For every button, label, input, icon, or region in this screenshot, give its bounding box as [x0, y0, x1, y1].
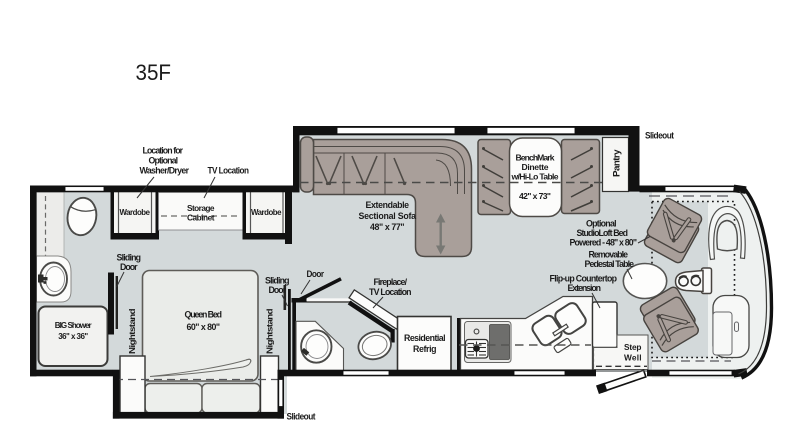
- svg-text:Refrig: Refrig: [413, 344, 436, 354]
- svg-text:Step: Step: [624, 342, 641, 352]
- svg-text:TV Location: TV Location: [208, 166, 249, 176]
- svg-text:BenchMark: BenchMark: [516, 153, 555, 163]
- svg-text:Sectional Sofa: Sectional Sofa: [359, 211, 417, 221]
- svg-text:w/Hi-Lo Table: w/Hi-Lo Table: [511, 172, 559, 182]
- svg-text:Wardobe: Wardobe: [251, 207, 282, 217]
- svg-text:Flip-up Countertop: Flip-up Countertop: [550, 274, 618, 284]
- svg-text:Extendable: Extendable: [366, 200, 410, 210]
- svg-text:Door: Door: [307, 269, 325, 279]
- svg-text:Storage: Storage: [187, 203, 215, 213]
- svg-text:Fireplace/: Fireplace/: [374, 277, 408, 287]
- svg-text:Nightstand: Nightstand: [265, 308, 275, 354]
- svg-text:Optional: Optional: [586, 219, 616, 229]
- svg-text:Powered - 48" x 80": Powered - 48" x 80": [570, 238, 637, 248]
- svg-text:Dinette: Dinette: [522, 162, 549, 172]
- svg-text:Removable: Removable: [589, 250, 629, 260]
- svg-text:60" x 80": 60" x 80": [187, 322, 220, 332]
- svg-text:Pedestal Table: Pedestal Table: [585, 259, 635, 269]
- svg-text:Cabinet: Cabinet: [187, 213, 215, 223]
- svg-text:BIG Shower: BIG Shower: [55, 321, 92, 330]
- svg-text:Optional: Optional: [149, 156, 178, 166]
- svg-text:35F: 35F: [136, 60, 172, 85]
- svg-text:Door: Door: [120, 262, 138, 272]
- svg-text:Pantry: Pantry: [612, 149, 622, 177]
- svg-text:48" x 77": 48" x 77": [370, 222, 404, 232]
- svg-text:Location for: Location for: [143, 146, 184, 156]
- svg-text:Door: Door: [269, 285, 287, 295]
- svg-text:Residential: Residential: [404, 333, 445, 343]
- svg-text:Extension: Extension: [568, 283, 601, 293]
- svg-text:Slideout: Slideout: [287, 412, 316, 422]
- svg-text:Sliding: Sliding: [117, 253, 141, 263]
- svg-text:42" x 73": 42" x 73": [519, 191, 551, 201]
- svg-text:Well: Well: [624, 353, 641, 363]
- svg-text:Washer/Dryer: Washer/Dryer: [140, 166, 190, 176]
- svg-text:Slideout: Slideout: [645, 131, 674, 141]
- svg-text:Sliding: Sliding: [265, 276, 289, 286]
- svg-text:36" x 36": 36" x 36": [58, 332, 88, 341]
- svg-text:TV Location: TV Location: [369, 287, 411, 297]
- svg-text:StudioLoft Bed: StudioLoft Bed: [577, 228, 628, 238]
- svg-text:Nightstand: Nightstand: [127, 308, 137, 354]
- svg-text:Queen Bed: Queen Bed: [185, 310, 222, 320]
- svg-text:Wardobe: Wardobe: [120, 207, 151, 217]
